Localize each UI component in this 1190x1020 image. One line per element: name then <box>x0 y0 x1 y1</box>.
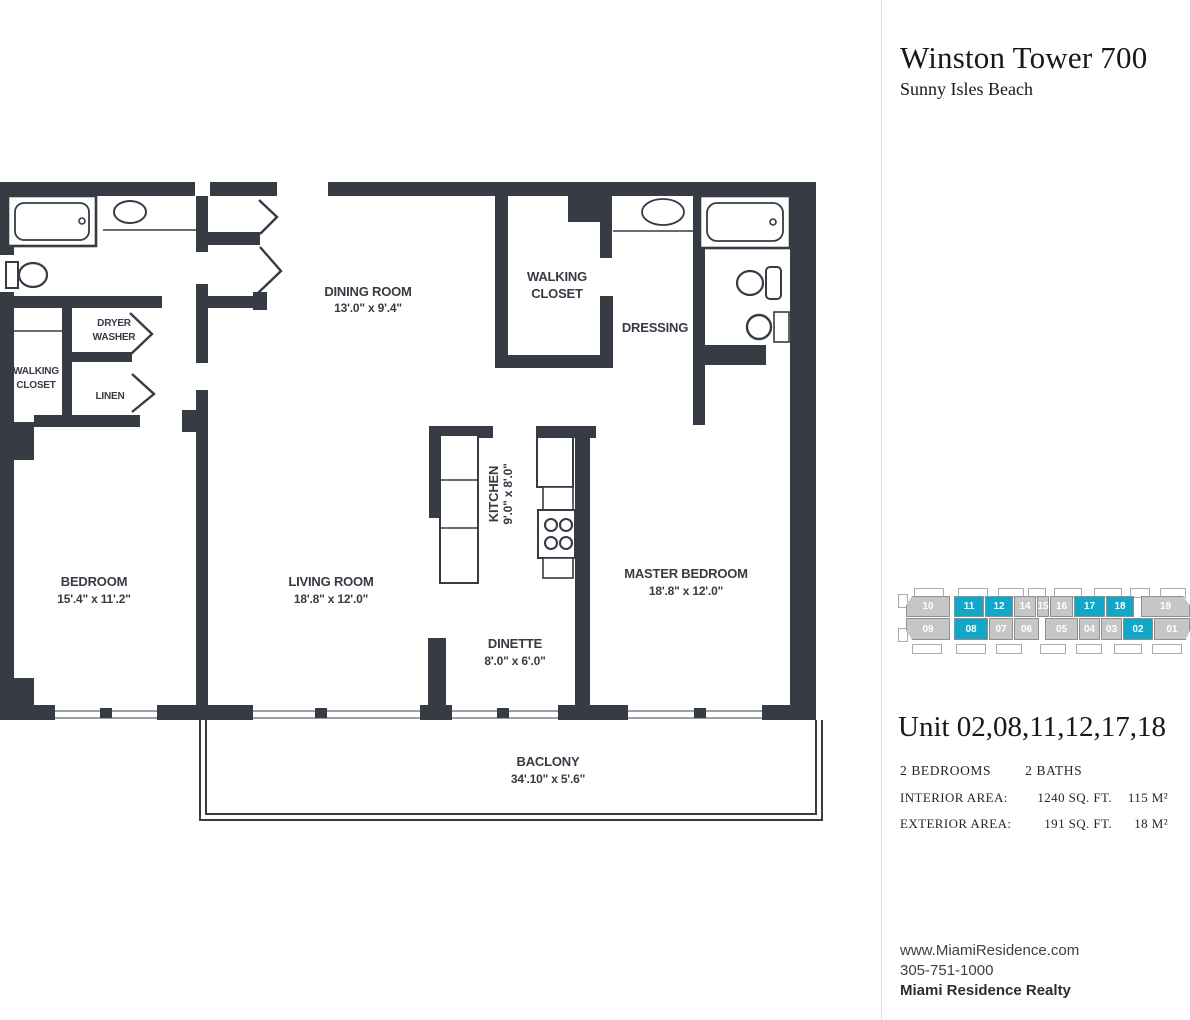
stack-unit-11: 11 <box>954 596 984 617</box>
contact-block: www.MiamiResidence.com 305-751-1000 Miam… <box>900 941 1079 1001</box>
kitchen-dims: 9'.0" x 8'.0" <box>501 463 515 524</box>
stack-unit-19: 19 <box>1141 596 1190 617</box>
stack-unit-08: 08 <box>954 618 988 640</box>
closet-door-swing <box>258 247 281 293</box>
flyer-page: DINING ROOM 13'.0" x 9'.4" WALKING CLOSE… <box>0 0 1190 1020</box>
stack-unit-09: 09 <box>906 618 950 640</box>
dining-room-dims: 13'.0" x 9'.4" <box>334 301 402 315</box>
exterior-area-sqft: 191 SQ. FT. <box>1016 816 1112 832</box>
panel-divider <box>881 0 882 1020</box>
unit-specs: 2 BEDROOMS2 BATHS <box>900 763 1116 779</box>
living-room-dims: 18'.8" x 12'.0" <box>294 592 368 606</box>
interior-area-sqm: 115 M² <box>1112 790 1168 806</box>
bedroom-dims: 15'.4" x 11'.2" <box>57 592 130 606</box>
stack-unit-15: 15 <box>1037 596 1049 617</box>
linen-label: LINEN <box>95 391 124 402</box>
balcony-tab <box>1040 644 1066 654</box>
stack-unit-05: 05 <box>1045 618 1078 640</box>
linen-door-swing <box>132 374 154 412</box>
unit-title: Unit 02,08,11,12,17,18 <box>898 711 1166 744</box>
stack-unit-18: 18 <box>1106 596 1134 617</box>
master-bedroom-dims: 18'.8" x 12'.0" <box>649 584 723 598</box>
bedroom-label: BEDROOM <box>61 574 128 589</box>
stack-unit-17: 17 <box>1074 596 1105 617</box>
bedrooms-count: 2 BEDROOMS <box>900 763 991 778</box>
walking-closet-top-label2: CLOSET <box>531 286 583 301</box>
dressing-label: DRESSING <box>622 320 688 335</box>
interior-area-label: INTERIOR AREA: <box>900 790 1016 806</box>
company-name: Miami Residence Realty <box>900 981 1079 1001</box>
stack-unit-07: 07 <box>989 618 1013 640</box>
website: www.MiamiResidence.com <box>900 941 1079 961</box>
kitchen-label: KITCHEN <box>486 466 501 522</box>
exterior-area-label: EXTERIOR AREA: <box>900 816 1016 832</box>
baths-count: 2 BATHS <box>1025 763 1082 778</box>
balcony-tab <box>956 644 986 654</box>
dining-room-label: DINING ROOM <box>324 284 411 299</box>
dryer-washer-label2: WASHER <box>93 332 137 343</box>
walking-closet-top-label1: WALKING <box>527 269 587 284</box>
living-room-label: LIVING ROOM <box>288 574 373 589</box>
stack-unit-03: 03 <box>1101 618 1122 640</box>
dinette-dims: 8'.0" x 6'.0" <box>484 654 545 668</box>
stack-unit-10: 10 <box>906 596 950 617</box>
dryer-washer-label1: DRYER <box>97 318 132 329</box>
entry-door-swing <box>259 200 277 234</box>
balcony-tab <box>1152 644 1182 654</box>
stack-unit-16: 16 <box>1050 596 1073 617</box>
master-bedroom-label: MASTER BEDROOM <box>624 566 748 581</box>
interior-area-row: INTERIOR AREA: 1240 SQ. FT. 115 M² <box>900 790 1168 806</box>
interior-area-sqft: 1240 SQ. FT. <box>1016 790 1112 806</box>
balcony-tab <box>912 644 942 654</box>
stack-unit-01: 01 <box>1154 618 1190 640</box>
walking-closet-left-label2: CLOSET <box>16 380 55 391</box>
floor-plan: DINING ROOM 13'.0" x 9'.4" WALKING CLOSE… <box>0 0 881 1020</box>
stack-unit-02: 02 <box>1123 618 1153 640</box>
phone-number: 305-751-1000 <box>900 961 1079 981</box>
stack-unit-06: 06 <box>1014 618 1039 640</box>
building-subtitle: Sunny Isles Beach <box>900 79 1033 100</box>
building-title: Winston Tower 700 <box>900 40 1147 76</box>
dinette-label: DINETTE <box>488 636 543 651</box>
exterior-area-sqm: 18 M² <box>1112 816 1168 832</box>
balcony-tab <box>1114 644 1142 654</box>
exterior-area-row: EXTERIOR AREA: 191 SQ. FT. 18 M² <box>900 816 1168 832</box>
unit-stack-diagram: 101112141516171819090807060504030201 <box>898 588 1190 654</box>
balcony-tab <box>1076 644 1102 654</box>
balcony-label: BACLONY <box>517 754 580 769</box>
walking-closet-left-label1: WALKING <box>13 366 59 377</box>
balcony-tab <box>996 644 1022 654</box>
balcony-dims: 34'.10" x 5'.6" <box>511 772 585 786</box>
stack-unit-04: 04 <box>1079 618 1100 640</box>
stack-unit-14: 14 <box>1014 596 1036 617</box>
stack-unit-12: 12 <box>985 596 1013 617</box>
